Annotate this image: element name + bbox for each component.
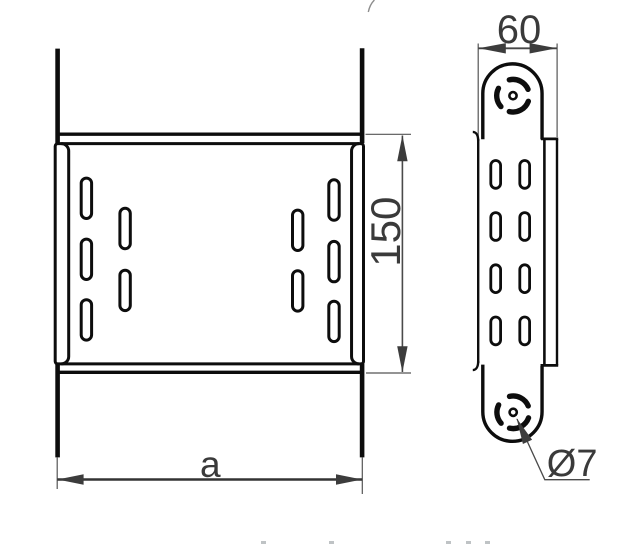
svg-text:60: 60 <box>497 8 542 52</box>
svg-text:a: a <box>200 444 221 485</box>
svg-text:150: 150 <box>362 197 409 267</box>
svg-text:Ø7: Ø7 <box>547 443 598 485</box>
